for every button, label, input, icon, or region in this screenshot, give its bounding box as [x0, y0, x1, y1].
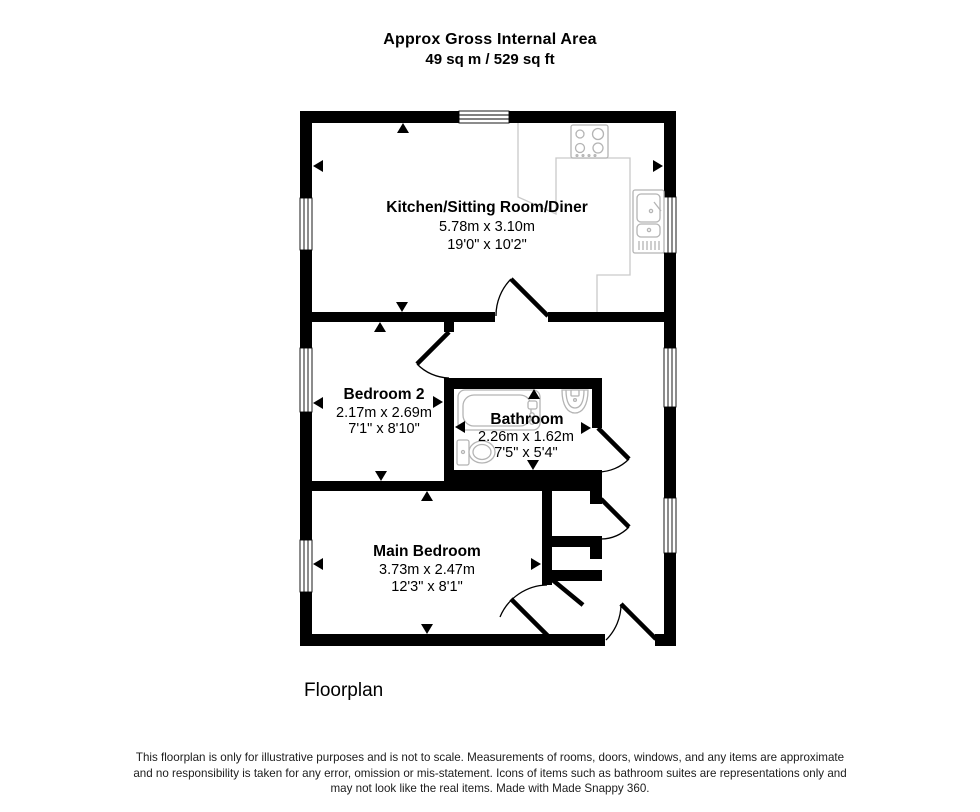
window-top-kitchen	[459, 111, 509, 123]
arrow-right-icon	[653, 160, 663, 172]
room-label-main-bedroom: Main Bedroom 3.73m x 2.47m 12'3" x 8'1"	[373, 543, 481, 595]
arrow-left-icon	[313, 558, 323, 570]
door-closet-upper	[601, 499, 629, 539]
room-label-kitchen: Kitchen/Sitting Room/Diner 5.78m x 3.10m…	[386, 199, 588, 253]
arrow-down-icon	[527, 460, 539, 470]
room-name: Kitchen/Sitting Room/Diner	[386, 199, 588, 216]
room-label-bedroom2: Bedroom 2 2.17m x 2.69m 7'1" x 8'10"	[336, 386, 432, 437]
window-right-kitchen	[664, 197, 676, 253]
door-closet-lower	[549, 577, 583, 605]
basin-icon	[562, 390, 588, 413]
arrow-down-icon	[375, 471, 387, 481]
arrow-up-icon	[421, 491, 433, 501]
door-bathroom	[598, 428, 629, 472]
window-left-bedroom2	[300, 348, 312, 412]
door-kitchen	[496, 279, 548, 316]
room-imperial: 7'1" x 8'10"	[348, 421, 419, 437]
arrow-right-icon	[581, 422, 591, 434]
walls	[300, 111, 676, 646]
floorplan-caption: Floorplan	[304, 680, 383, 702]
arrow-left-icon	[313, 397, 323, 409]
arrow-down-icon	[396, 302, 408, 312]
room-imperial: 12'3" x 8'1"	[391, 579, 462, 595]
room-metric: 2.17m x 2.69m	[336, 405, 432, 421]
disclaimer-text: This floorplan is only for illustrative …	[0, 750, 980, 797]
sink-icon	[633, 190, 664, 253]
window-right-hall	[664, 348, 676, 407]
room-name: Bathroom	[490, 411, 563, 428]
door-main-bedroom	[500, 585, 548, 636]
kitchen-measure-arrows	[313, 123, 663, 312]
room-name: Main Bedroom	[373, 543, 481, 560]
arrow-right-icon	[433, 396, 443, 408]
door-bedroom2	[417, 332, 449, 378]
window-right-entry	[664, 498, 676, 553]
floorplan-drawing: Kitchen/Sitting Room/Diner 5.78m x 3.10m…	[0, 0, 980, 812]
arrow-right-icon	[531, 558, 541, 570]
arrow-left-icon	[313, 160, 323, 172]
arrow-up-icon	[397, 123, 409, 133]
room-imperial: 19'0" x 10'2"	[447, 237, 527, 253]
door-entry	[606, 604, 656, 640]
hob-icon	[571, 125, 608, 158]
disclaimer-line-1: This floorplan is only for illustrative …	[0, 750, 980, 766]
window-left-kitchen	[300, 198, 312, 250]
arrow-down-icon	[421, 624, 433, 634]
room-metric: 2.26m x 1.62m	[478, 429, 574, 445]
disclaimer-line-3: may not look like the real items. Made w…	[0, 781, 980, 797]
floorplan-page: Approx Gross Internal Area 49 sq m / 529…	[0, 0, 980, 812]
disclaimer-line-2: and no responsibility is taken for any e…	[0, 766, 980, 782]
room-name: Bedroom 2	[344, 386, 425, 403]
window-left-main-bedroom	[300, 540, 312, 592]
room-metric: 3.73m x 2.47m	[379, 562, 475, 578]
room-metric: 5.78m x 3.10m	[439, 219, 535, 235]
room-imperial: 7'5" x 5'4"	[494, 445, 557, 461]
arrow-up-icon	[374, 322, 386, 332]
